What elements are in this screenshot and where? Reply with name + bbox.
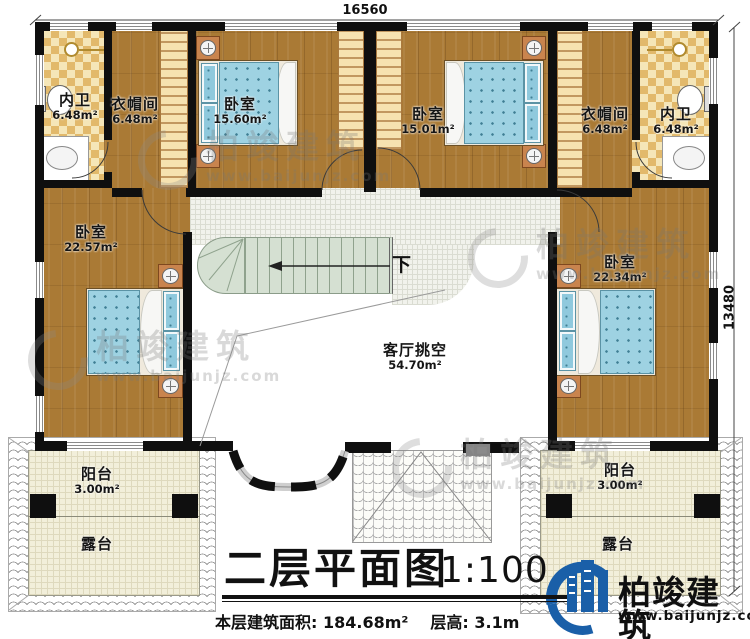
bed-sheet <box>276 62 296 144</box>
shower-head-icon <box>64 42 79 57</box>
lamp-icon <box>560 378 577 394</box>
floor-plan-canvas: 下 <box>0 0 750 639</box>
room-label-cloak-right: 衣帽间 6.48m² <box>570 106 640 135</box>
wall-segment <box>548 232 557 450</box>
floor-height-value: 3.1m <box>474 613 519 632</box>
window <box>116 22 152 31</box>
wall-segment <box>186 188 240 197</box>
terrace-pillar <box>172 494 198 518</box>
nightstand <box>556 374 581 398</box>
wall-segment <box>633 180 718 188</box>
room-label-terrace-right: 露台 <box>583 536 653 553</box>
room-label-bedroom-right: 卧室 22.34m² <box>585 254 655 283</box>
wall-segment <box>183 232 192 450</box>
shower-head-icon <box>672 42 687 57</box>
dimension-top: 16560 <box>315 3 415 18</box>
porch-roof <box>352 450 492 543</box>
stair-treads <box>244 238 389 293</box>
floor-area-value: 184.68m² <box>323 613 408 632</box>
bed-mattress <box>600 290 654 374</box>
floor-area-label: 本层建筑面积: 184.68m² <box>215 609 408 633</box>
staircase <box>197 237 393 294</box>
shower-arm <box>79 49 104 51</box>
shower-arm <box>647 49 672 51</box>
wall-segment <box>35 180 112 188</box>
wall-segment <box>420 188 548 197</box>
wardrobe <box>338 26 364 150</box>
lamp-icon <box>162 268 179 284</box>
window <box>67 441 143 451</box>
nightstand <box>158 264 183 288</box>
window <box>709 252 718 288</box>
room-label-bedroom-top-left: 卧室 15.60m² <box>205 96 275 125</box>
bed-pillow <box>525 64 540 102</box>
wall-column <box>466 444 490 456</box>
sink-basin <box>673 146 705 170</box>
wall-segment <box>557 441 575 451</box>
wall-segment <box>188 22 196 197</box>
room-label-cloak-left: 衣帽间 6.48m² <box>100 96 170 125</box>
wall-segment <box>345 442 391 453</box>
title-underline <box>222 595 567 599</box>
title-underline-thin <box>222 601 567 602</box>
window <box>50 22 88 31</box>
brand-url: www.baijunjz.com <box>618 608 750 624</box>
lamp-icon <box>560 268 577 284</box>
bed-mattress <box>88 290 140 374</box>
wall-segment <box>35 441 67 451</box>
curved-bay-window <box>233 451 345 487</box>
nightstand <box>196 144 220 168</box>
bed-sheet <box>140 290 162 374</box>
window <box>709 58 718 104</box>
terrace-pillar <box>546 494 572 518</box>
wall-segment <box>143 441 233 451</box>
plan-info-row: 本层建筑面积: 184.68m² 层高: 3.1m <box>215 609 519 633</box>
stair-down-label: 下 <box>392 250 418 277</box>
wall-segment <box>650 441 718 451</box>
plan-title: 二层平面图 <box>224 548 449 590</box>
window <box>225 22 337 31</box>
lamp-icon <box>526 40 542 56</box>
room-label-balcony-right: 阳台 3.00m² <box>585 462 655 491</box>
bed-pillow <box>560 292 575 330</box>
window <box>575 441 650 451</box>
sink-basin <box>46 146 78 170</box>
nightstand <box>522 144 546 168</box>
room-label-bath-right: 内卫 6.48m² <box>641 106 711 135</box>
plan-scale: 1:100 <box>440 553 549 589</box>
lamp-icon <box>200 40 216 56</box>
wall-segment <box>112 188 142 197</box>
floor-height-label: 层高: 3.1m <box>430 609 519 633</box>
nightstand <box>522 36 546 60</box>
room-label-balcony-left: 阳台 3.00m² <box>62 466 132 495</box>
bed-pillow <box>164 292 179 330</box>
window <box>407 22 520 31</box>
bed-pillow <box>560 332 575 370</box>
terrace-pillar <box>694 494 720 518</box>
window <box>709 343 718 379</box>
lamp-icon <box>162 378 179 394</box>
lamp-icon <box>200 148 216 164</box>
bed-pillow <box>525 104 540 142</box>
nightstand <box>196 36 220 60</box>
nightstand <box>556 264 581 288</box>
room-label-terrace-left: 露台 <box>62 536 132 553</box>
bed-pillow <box>164 332 179 370</box>
window <box>588 22 633 31</box>
room-label-bedroom-left: 卧室 22.57m² <box>56 224 126 253</box>
room-label-living-void: 客厅挑空 54.70m² <box>368 342 462 371</box>
wall-segment <box>240 188 322 197</box>
terrace-pillar <box>30 494 56 518</box>
wall-segment <box>557 188 632 197</box>
wall-segment <box>548 22 557 197</box>
nightstand <box>158 374 183 398</box>
room-label-bedroom-top-right: 卧室 15.01m² <box>393 106 463 135</box>
dimension-right: 13480 <box>723 278 738 338</box>
window <box>35 262 44 298</box>
lamp-icon <box>526 148 542 164</box>
window <box>652 22 692 31</box>
window <box>35 396 44 432</box>
bed-mattress <box>464 62 524 144</box>
wall-segment <box>364 22 376 192</box>
